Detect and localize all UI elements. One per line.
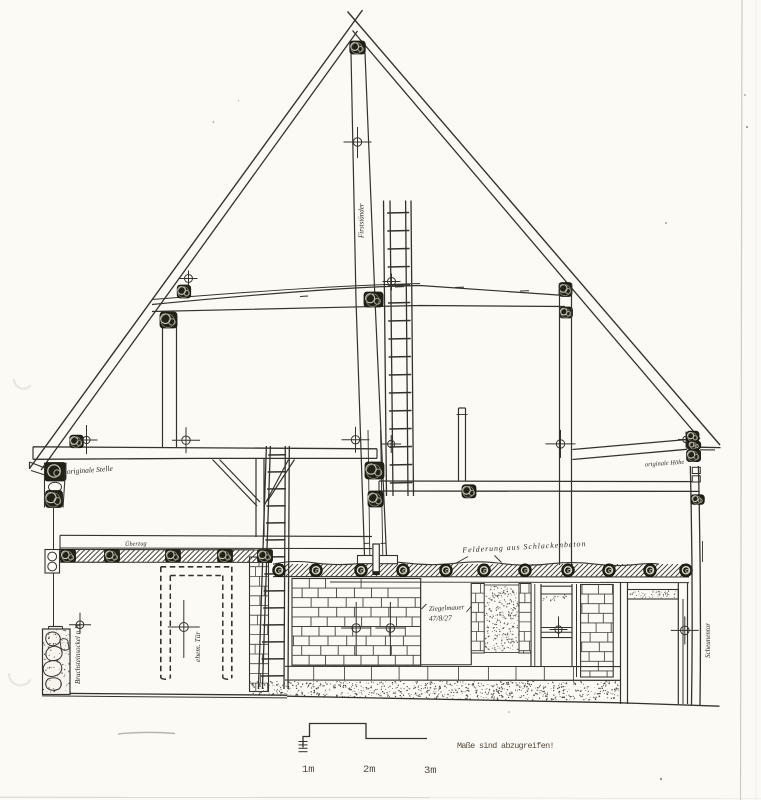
svg-text:Firstständer: Firstständer <box>358 203 366 239</box>
svg-text:47/8/27: 47/8/27 <box>429 613 452 623</box>
svg-text:2m: 2m <box>363 764 376 776</box>
svg-text:Überzug: Überzug <box>125 539 147 548</box>
svg-text:Bruchsteinsockel n.B.: Bruchsteinsockel n.B. <box>74 623 82 684</box>
svg-text:Maße sind abzugreifen!: Maße sind abzugreifen! <box>457 741 554 751</box>
svg-text:ehem. Tür: ehem. Tür <box>193 632 202 662</box>
svg-text:3m: 3m <box>424 765 437 777</box>
svg-text:Scheunentor: Scheunentor <box>704 623 712 658</box>
svg-text:1m: 1m <box>302 764 315 776</box>
